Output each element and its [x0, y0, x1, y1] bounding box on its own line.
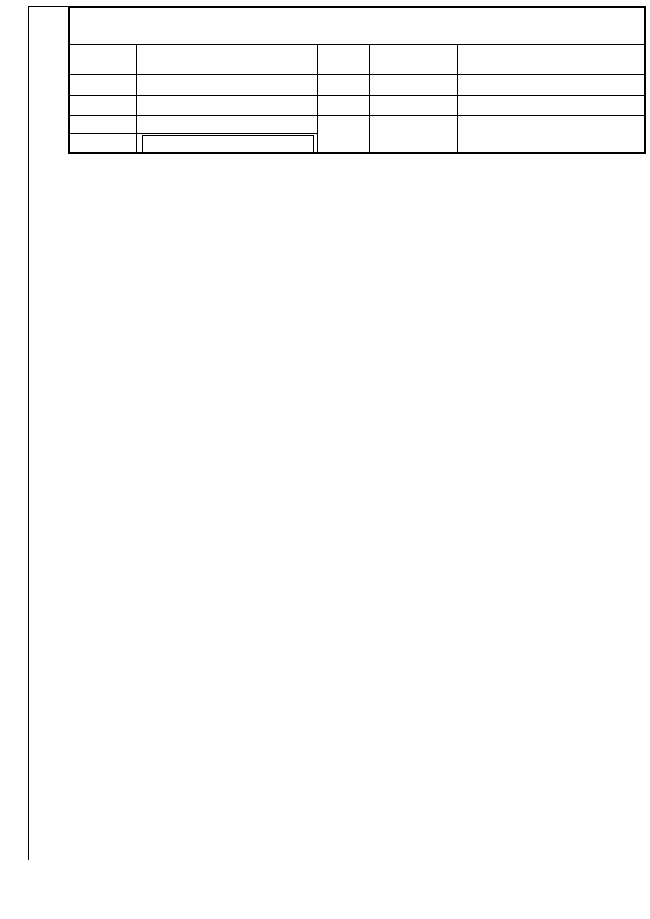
- map-canvas: [0, 0, 650, 919]
- geodetic-plan-page: { "title_block": { "title": "GEODETSKI N…: [0, 0, 650, 919]
